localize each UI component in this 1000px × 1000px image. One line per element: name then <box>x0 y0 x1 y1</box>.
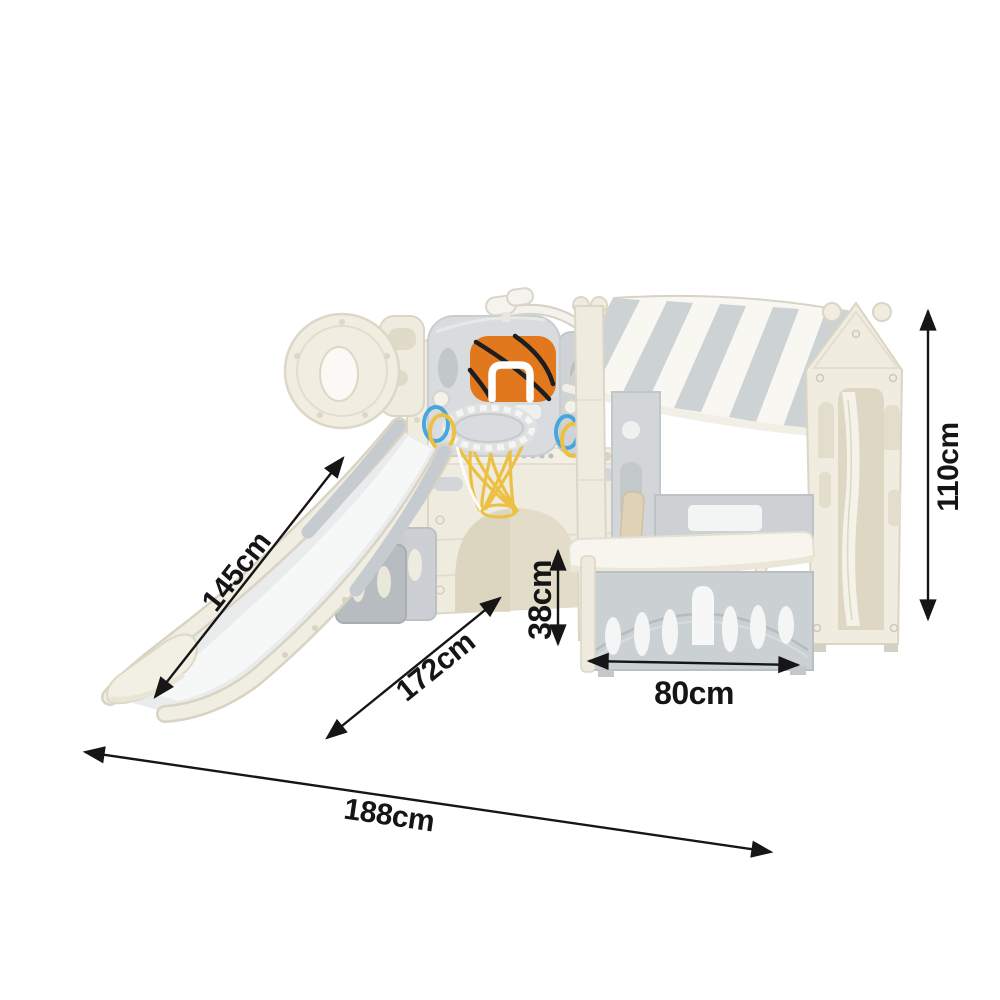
dim-label-table-height: 38cm <box>524 560 556 640</box>
climbing-panel-illustration <box>285 314 424 428</box>
playset-illustration <box>0 0 1000 1000</box>
playhouse-illustration <box>566 296 902 677</box>
dim-label-overall-height: 110cm <box>934 422 964 511</box>
fence-illustration <box>581 556 813 677</box>
gable-wall-illustration <box>806 303 902 652</box>
dimension-diagram: 145cm 172cm 38cm 80cm 110cm 188cm <box>0 0 1000 1000</box>
dim-label-playhouse-width: 80cm <box>654 677 734 709</box>
